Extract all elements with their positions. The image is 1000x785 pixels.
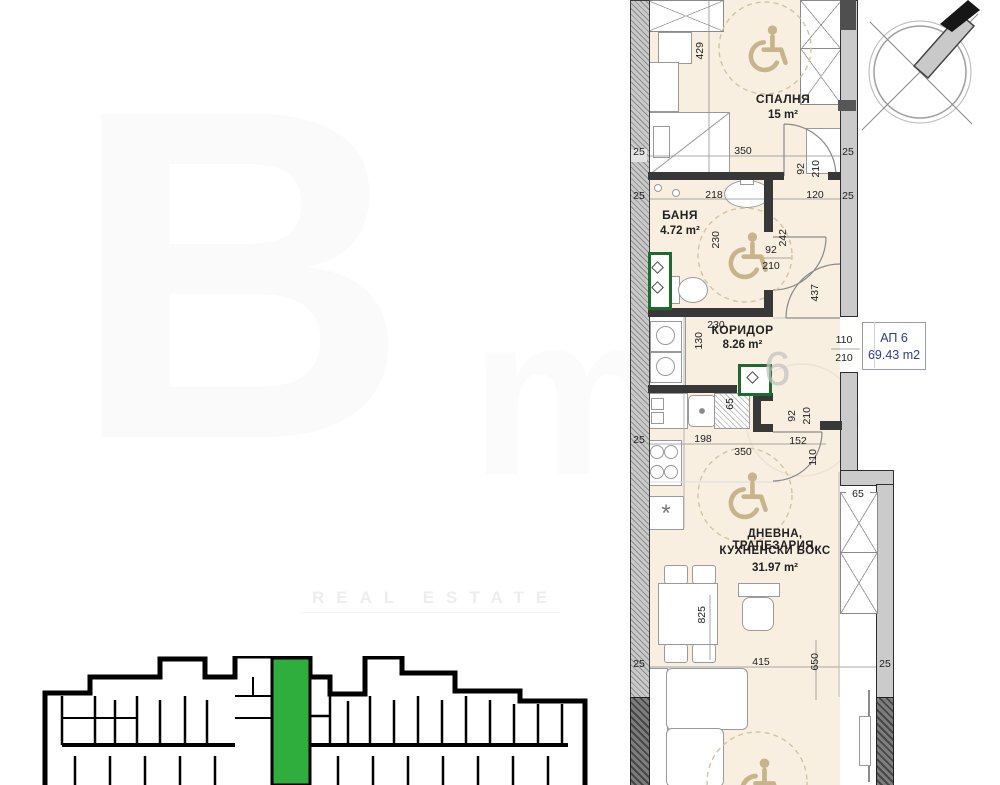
bathroom-right-wall-a bbox=[764, 180, 773, 232]
dim-wall: 25 bbox=[631, 434, 647, 446]
dim-wall: 25 bbox=[631, 190, 647, 202]
dim-650: 650 bbox=[809, 653, 821, 671]
dim-entry-width: 110 bbox=[831, 334, 857, 346]
dim-bath-door-height: 210 bbox=[752, 260, 790, 272]
passage-jamb-bottom bbox=[753, 424, 773, 432]
dim-bedroom-height: 429 bbox=[694, 42, 706, 60]
left-exterior-wall-dark bbox=[630, 697, 650, 785]
dim-passage-height: 210 bbox=[801, 407, 813, 425]
dim-closet: 65 bbox=[846, 488, 870, 500]
bathroom-area: 4.72 m² bbox=[641, 225, 719, 237]
dim-wall: 25 bbox=[840, 146, 856, 158]
entry-closet-upper bbox=[840, 492, 878, 554]
dim-110: 110 bbox=[807, 449, 819, 466]
living-area: 31.97 m² bbox=[710, 562, 840, 574]
apartment-box-gridline bbox=[874, 322, 875, 368]
right-wall-cap bbox=[840, 0, 856, 30]
kitchen-niche-wall bbox=[648, 385, 737, 393]
shaft-valve-icon bbox=[746, 371, 759, 384]
bedroom-area: 15 m² bbox=[728, 109, 838, 121]
bedroom-bath-wall bbox=[648, 172, 784, 180]
shaft-valve-icon bbox=[651, 261, 664, 274]
dim-bedroom-width: 350 bbox=[728, 145, 758, 157]
dim-bedroom-door-height: 210 bbox=[810, 160, 822, 178]
apartment-total-area: 69.43 m2 bbox=[863, 348, 925, 362]
dim-152: 152 bbox=[783, 435, 813, 447]
dim-washer: 65 bbox=[724, 398, 736, 410]
dim-415: 415 bbox=[746, 656, 776, 668]
bathroom-label: БАНЯ bbox=[645, 208, 715, 222]
dim-bath-depth: 230 bbox=[710, 231, 722, 249]
dim-wall: 25 bbox=[877, 658, 893, 670]
north-arrow-icon bbox=[856, 0, 996, 135]
dim-wall: 25 bbox=[631, 658, 647, 670]
dim-198: 198 bbox=[688, 433, 718, 445]
right-exterior-wall-dark bbox=[876, 697, 894, 785]
entry-closet-lower bbox=[840, 552, 878, 614]
apartment-id-box: АП 6 69.43 m2 bbox=[862, 322, 926, 370]
living-label-line2: КУХНЕНСКИ БОКС bbox=[710, 545, 840, 557]
building-key-plan bbox=[38, 656, 592, 785]
dim-living-350: 350 bbox=[728, 446, 758, 458]
dim-wall: 25 bbox=[631, 146, 647, 158]
watermark-underline bbox=[300, 612, 560, 613]
passage-stub-right bbox=[820, 421, 842, 430]
highlighted-unit bbox=[272, 658, 310, 785]
plumbing-shaft-bathroom bbox=[648, 252, 672, 310]
watermark-logo-letter: B bbox=[70, 40, 409, 510]
right-wall-band bbox=[838, 100, 856, 111]
dim-bedroom-door-width: 92 bbox=[795, 163, 807, 175]
dim-437: 437 bbox=[809, 284, 821, 302]
apartment-id: АП 6 bbox=[863, 331, 925, 345]
dim-passage-width: 92 bbox=[786, 410, 798, 422]
left-exterior-wall bbox=[630, 0, 650, 699]
bedroom-label: СПАЛНЯ bbox=[728, 92, 838, 106]
dim-hall-top: 120 bbox=[798, 189, 832, 201]
dim-wall: 25 bbox=[840, 190, 856, 202]
dim-242: 242 bbox=[777, 229, 789, 247]
corridor-area: 8.26 m² bbox=[705, 339, 780, 351]
shaft-valve-icon bbox=[651, 281, 664, 294]
dim-825: 825 bbox=[696, 606, 708, 624]
right-exterior-wall-mid bbox=[840, 372, 858, 474]
dim-corridor-width: 230 bbox=[698, 319, 734, 331]
dim-corridor-130: 130 bbox=[693, 332, 705, 350]
watermark-brand-text: REAL ESTATE bbox=[312, 588, 559, 608]
dim-bath-width: 218 bbox=[697, 189, 731, 201]
bedroom-wall-stub bbox=[828, 172, 840, 180]
dim-entry-height: 210 bbox=[831, 352, 857, 364]
floor-plan-page: B m REAL ESTATE * bbox=[0, 0, 1000, 785]
